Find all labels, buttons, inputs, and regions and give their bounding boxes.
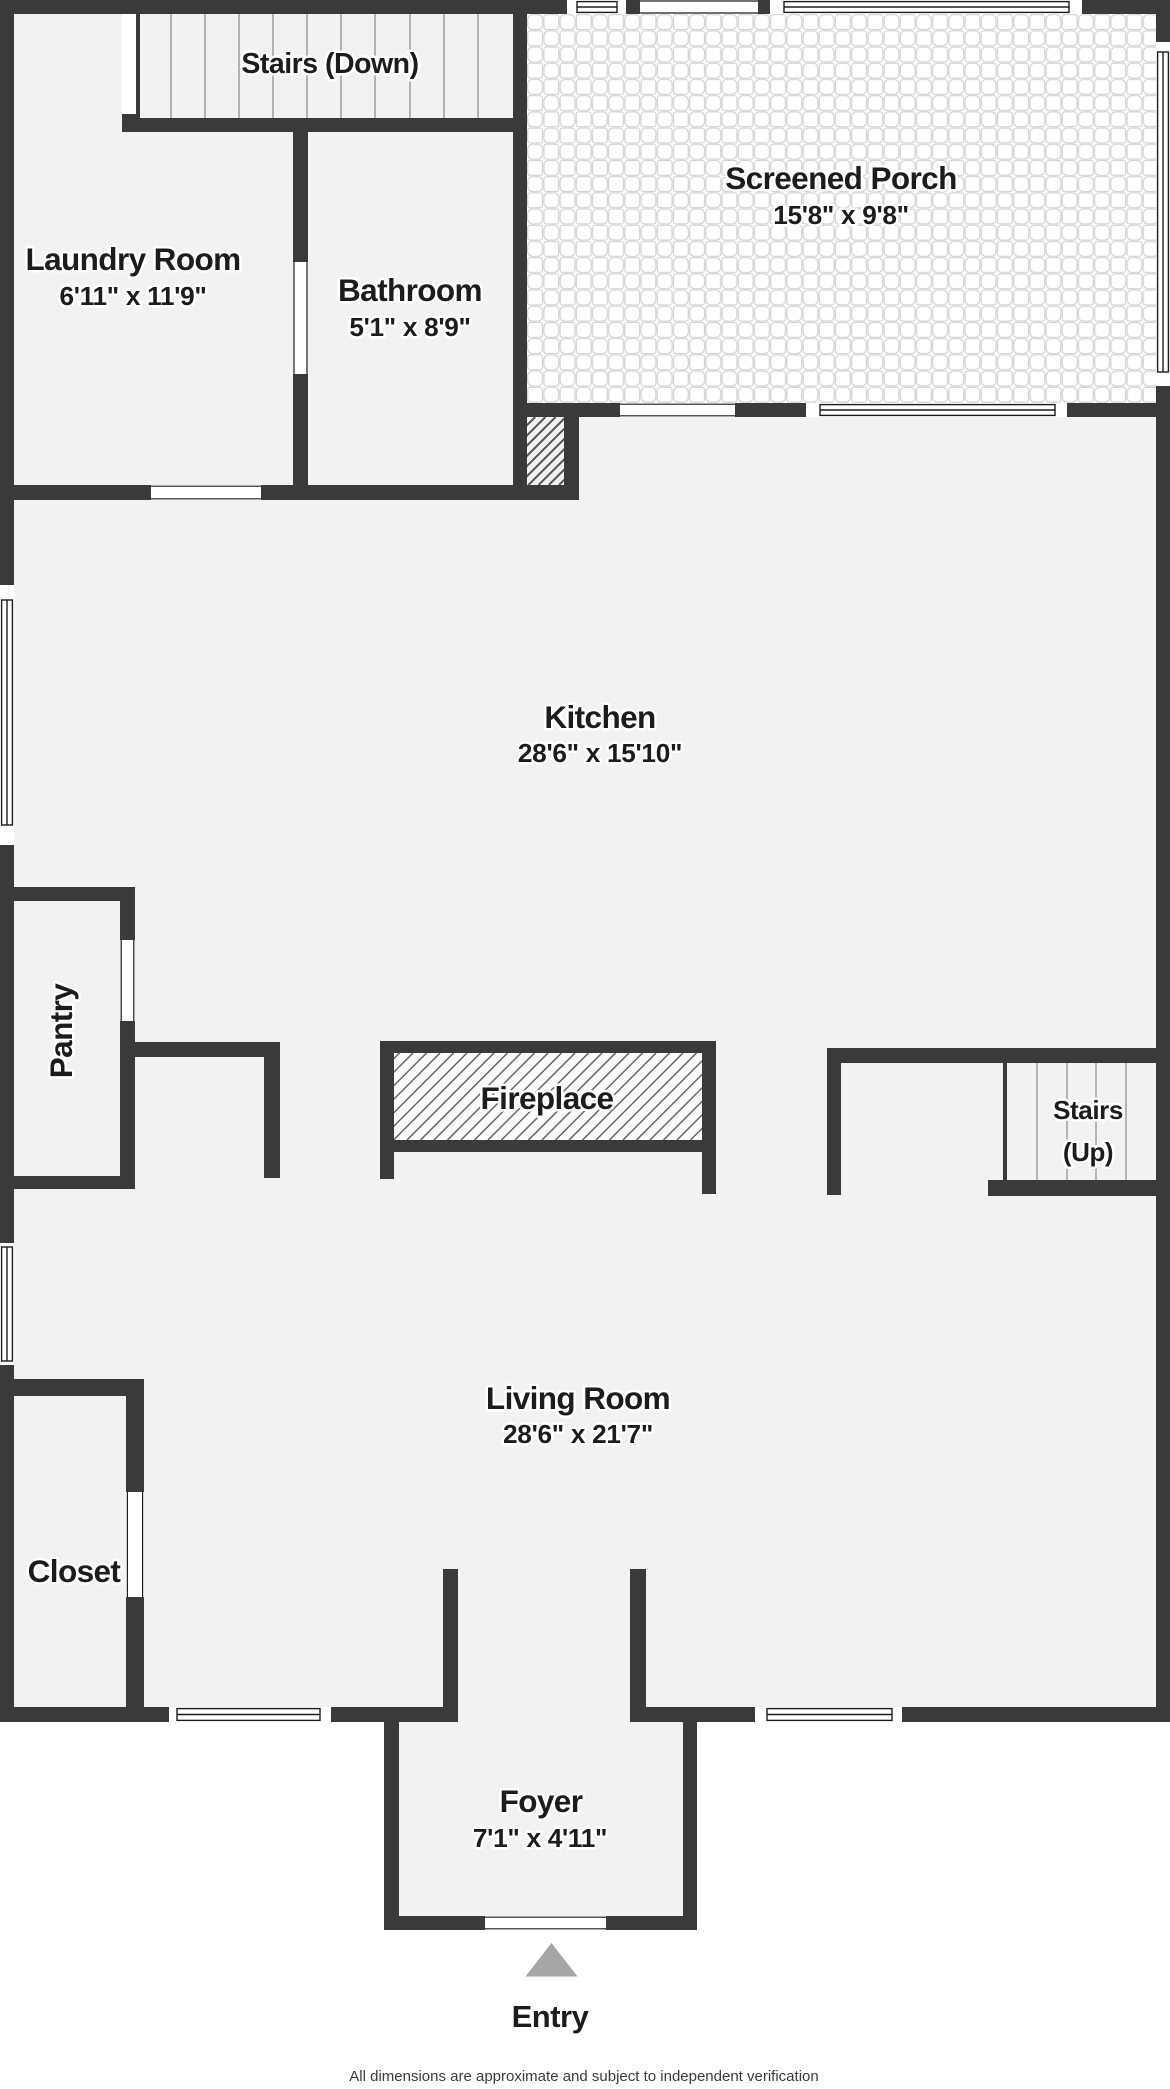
svg-text:Laundry Room: Laundry Room: [25, 241, 240, 277]
svg-text:Bathroom: Bathroom: [338, 272, 482, 308]
svg-text:6'11" x 11'9": 6'11" x 11'9": [60, 281, 207, 311]
svg-text:28'6" x 21'7": 28'6" x 21'7": [503, 1419, 653, 1449]
svg-text:Stairs (Down): Stairs (Down): [241, 48, 418, 80]
svg-text:28'6" x 15'10": 28'6" x 15'10": [518, 738, 682, 768]
svg-text:Foyer: Foyer: [500, 1783, 583, 1819]
svg-text:7'1" x 4'11": 7'1" x 4'11": [473, 1823, 607, 1853]
svg-text:Pantry: Pantry: [43, 983, 79, 1079]
svg-text:Living Room: Living Room: [486, 1380, 670, 1416]
svg-text:Stairs: Stairs: [1053, 1095, 1123, 1125]
svg-text:Kitchen: Kitchen: [544, 699, 655, 735]
svg-text:Fireplace: Fireplace: [481, 1080, 614, 1116]
svg-text:5'1" x 8'9": 5'1" x 8'9": [349, 312, 470, 342]
svg-text:All dimensions are approximate: All dimensions are approximate and subje…: [349, 2068, 818, 2085]
svg-text:(Up): (Up): [1063, 1137, 1113, 1167]
svg-text:Screened Porch: Screened Porch: [725, 160, 956, 196]
svg-text:15'8" x 9'8": 15'8" x 9'8": [773, 200, 909, 230]
svg-text:Entry: Entry: [512, 1999, 590, 2034]
svg-text:Closet: Closet: [28, 1553, 122, 1589]
